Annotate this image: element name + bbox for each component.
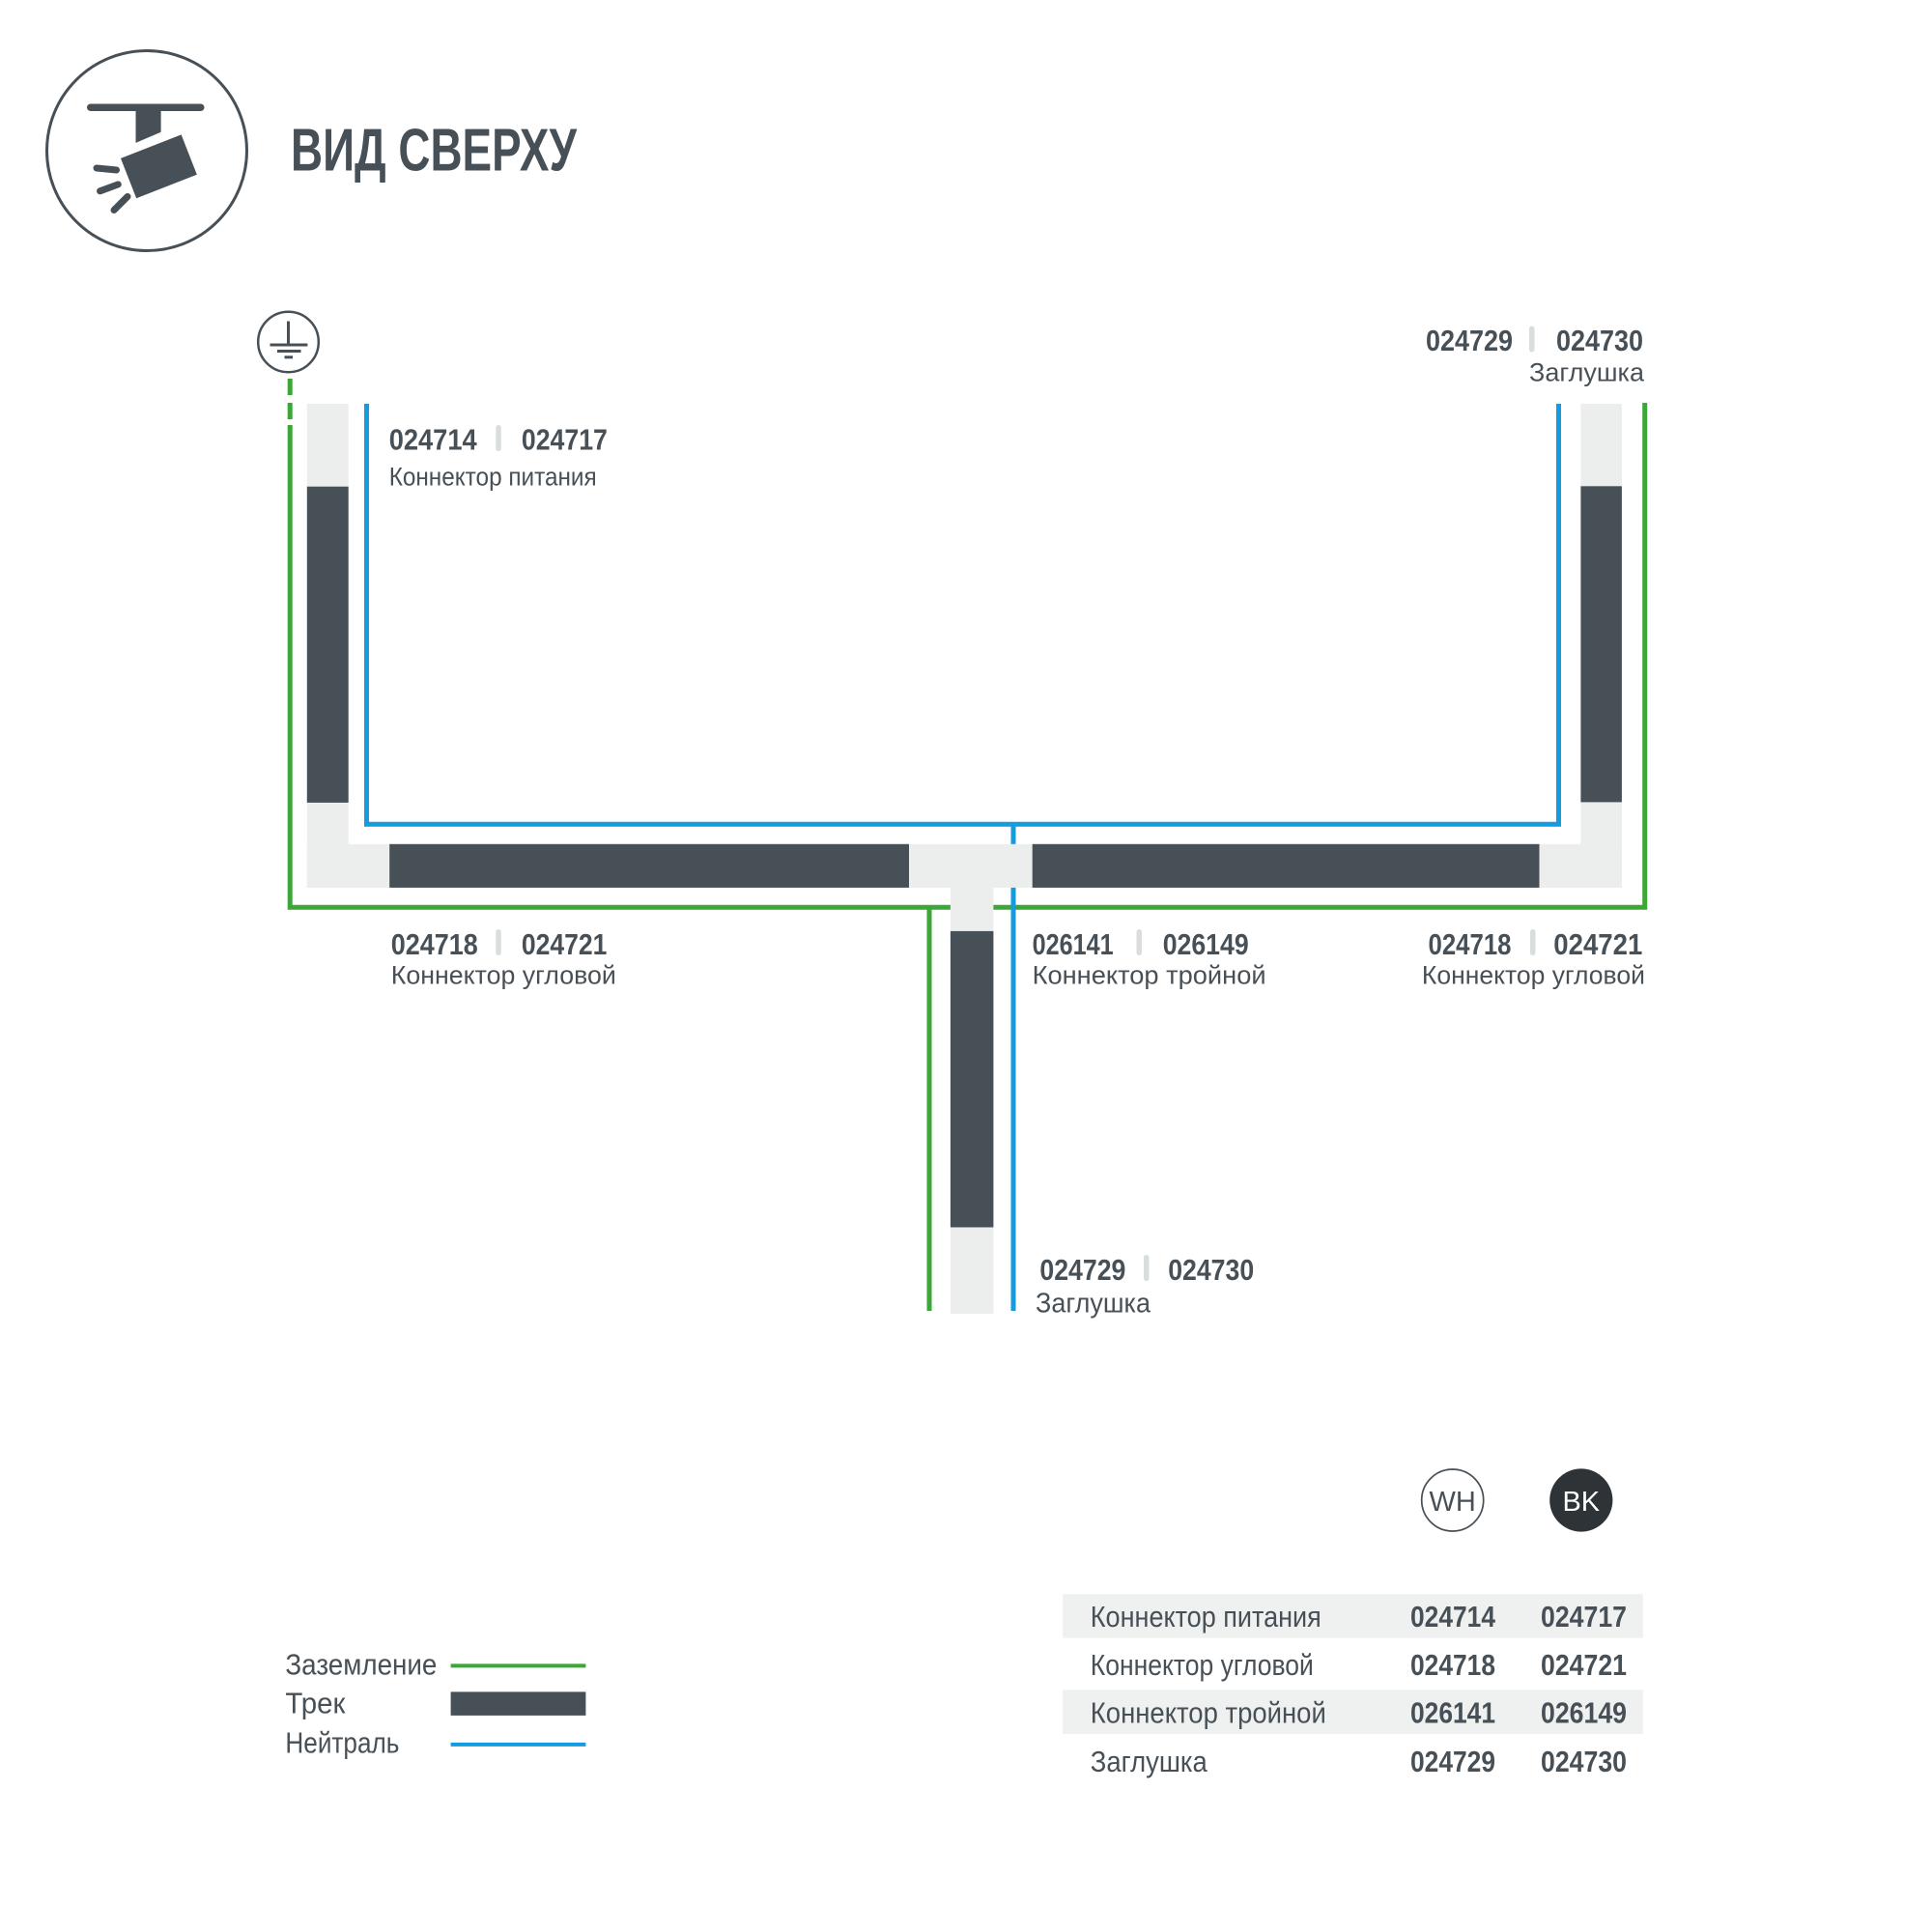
svg-text:024717: 024717: [1541, 1600, 1627, 1634]
svg-text:Заземление: Заземление: [285, 1648, 437, 1682]
svg-text:Коннектор угловой: Коннектор угловой: [1422, 961, 1645, 990]
svg-text:Коннектор угловой: Коннектор угловой: [1091, 1648, 1314, 1682]
svg-text:026141: 026141: [1033, 927, 1114, 961]
svg-text:Коннектор тройной: Коннектор тройной: [1033, 961, 1266, 990]
svg-text:024721: 024721: [1553, 927, 1642, 961]
svg-text:024718: 024718: [1429, 927, 1512, 961]
svg-text:024718: 024718: [391, 927, 478, 961]
svg-text:024714: 024714: [389, 423, 478, 457]
svg-text:026149: 026149: [1541, 1696, 1627, 1730]
svg-text:Коннектор тройной: Коннектор тройной: [1091, 1696, 1326, 1730]
svg-text:Трек: Трек: [285, 1687, 345, 1720]
svg-text:Коннектор питания: Коннектор питания: [1091, 1600, 1321, 1634]
svg-text:ВИД СВЕРХУ: ВИД СВЕРХУ: [291, 118, 578, 185]
svg-text:Коннектор угловой: Коннектор угловой: [391, 961, 616, 990]
svg-text:Заглушка: Заглушка: [1091, 1745, 1208, 1778]
svg-text:024730: 024730: [1556, 324, 1643, 357]
svg-text:Заглушка: Заглушка: [1036, 1289, 1151, 1320]
svg-text:BK: BK: [1562, 1487, 1600, 1518]
svg-text:024729: 024729: [1410, 1745, 1495, 1778]
svg-text:024729: 024729: [1426, 324, 1513, 357]
svg-text:Нейтраль: Нейтраль: [285, 1726, 399, 1760]
svg-text:024729: 024729: [1039, 1253, 1125, 1287]
svg-text:026149: 026149: [1163, 927, 1249, 961]
svg-text:024730: 024730: [1541, 1745, 1627, 1778]
svg-text:024714: 024714: [1410, 1600, 1496, 1634]
svg-text:Коннектор питания: Коннектор питания: [389, 463, 597, 492]
svg-text:Заглушка: Заглушка: [1529, 358, 1645, 387]
svg-text:024730: 024730: [1168, 1253, 1254, 1287]
svg-text:026141: 026141: [1410, 1696, 1495, 1730]
svg-text:024718: 024718: [1410, 1648, 1495, 1682]
svg-text:024717: 024717: [522, 423, 608, 457]
svg-text:024721: 024721: [522, 927, 608, 961]
svg-text:WH: WH: [1430, 1487, 1476, 1518]
svg-text:024721: 024721: [1541, 1648, 1627, 1682]
